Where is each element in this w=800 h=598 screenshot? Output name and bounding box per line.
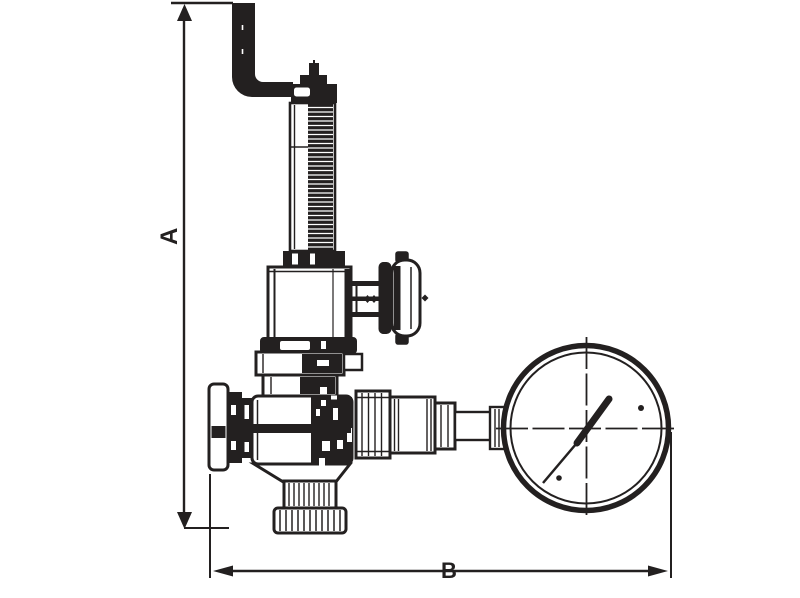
svg-text:B: B: [441, 558, 457, 583]
svg-text:A: A: [156, 228, 183, 245]
